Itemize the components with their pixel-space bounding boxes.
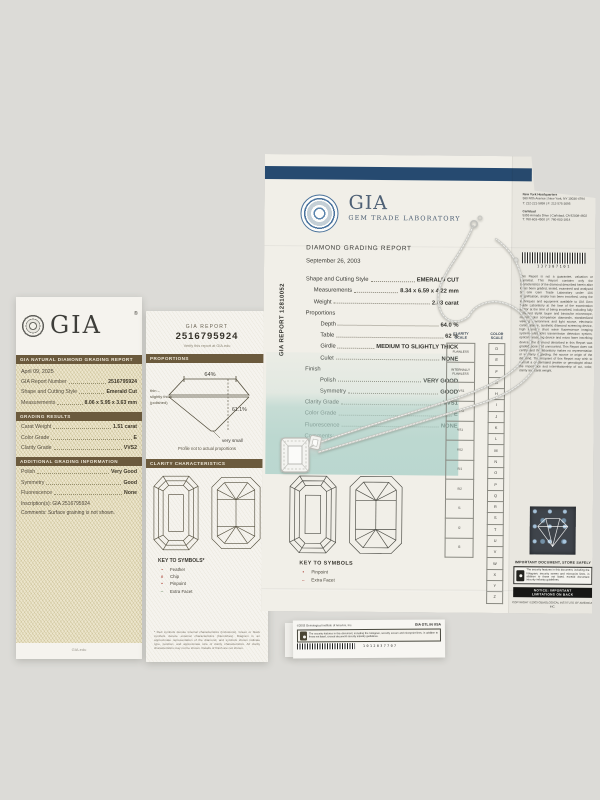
strip-key-title: KEY TO SYMBOLS* [158,558,268,564]
grading-results-fields: Carat Weight1.51 caratColor GradeEClarit… [21,424,137,451]
address-carlsbad: Carlsbad5355 Armada Drive | Carlsbad, CA… [522,209,592,223]
color-cell: G [488,378,505,389]
clarity-cell: INTERNALLY FLAWLESS [446,363,475,383]
color-scale-title: COLOR SCALE [488,332,505,341]
certificate-date: April 09, 2025 [21,369,137,375]
comments-value: NONE [304,439,457,452]
certificate-header-bar: GIA NATURAL DIAMOND GRADING REPORT [16,355,142,364]
key-item: –Extra Facet [299,576,353,584]
left-certificate: GIA ® GIA NATURAL DIAMOND GRADING REPORT… [16,297,142,659]
crown-view-diagram [153,474,199,552]
color-cell: V [486,547,503,558]
navy-top-bar [265,166,532,181]
table-percent-label: 64% [204,372,215,378]
color-cell: E [488,355,505,366]
certificate-footer: GIA.edu [16,643,142,659]
address-new-york: New York Headquarters580 Fifth Avenue | … [523,192,593,206]
photo-of-gia-reports: GIA ® GIA NATURAL DIAMOND GRADING REPORT… [0,0,600,800]
strip-report-label: GIA REPORT [146,324,268,330]
color-cell: S [487,513,504,524]
clarity-cell: VVS2 [446,402,475,422]
proportions-group-label: Proportions [306,305,459,318]
report-key-block: KEY TO SYMBOLS •Pinpoint–Extra Facet [299,560,353,584]
key-item: –Extra Facet [158,588,268,595]
color-cell: Z [486,592,503,603]
girdle-label-1: thin – [150,388,161,393]
key-item: ∧Chip [158,573,268,580]
certificate-logo-area: GIA ® [16,297,142,355]
field-row: FluorescenceNone [21,490,137,496]
report-legal-text: This Report is not a guarantee, valuatio… [519,274,593,373]
card-barcode-number: 1012037707 [363,644,397,648]
security-card: ©2003 Gemological Institute of America, … [293,619,445,658]
color-cell: T [487,525,504,536]
notice-bar: NOTICE: IMPORTANT LIMITATIONS ON BACK [513,587,592,598]
field-row: SymmetryGOOD [320,383,458,395]
address-line: T: 212-221-5858 | F: 212-575-3095 [523,201,593,206]
color-cell: I [488,400,505,411]
registered-mark: ® [134,311,138,317]
field-row: Carat Weight1.51 carat [21,424,137,430]
color-cell: J [488,412,505,423]
proportions-rows: Depth64.0 %Table62 %GirdleMEDIUM TO SLIG… [305,316,458,362]
clarity-cell: VVS1 [446,382,475,402]
report-barcode [522,252,586,264]
notice-line-2: LIMITATIONS ON BACK [513,593,592,598]
girdle-label-2: slightly thick [150,394,172,399]
card-code: GIA GTL IN USA [415,622,441,626]
additional-fields: PolishVery GoodSymmetryGoodFluorescenceN… [21,469,137,496]
key-item: ~Feather [158,566,268,573]
comments-line: Comments: Surface graining is not shown. [21,510,137,516]
card-security-text: The security features in this document, … [309,632,438,639]
report-key-title: KEY TO SYMBOLS [299,560,353,566]
culet-label: very small [222,438,243,443]
color-cell: F [488,366,505,377]
padlock-icon [516,570,524,581]
card-copyright: ©2003 Gemological Institute of America, … [297,623,352,627]
field-row: Color GradeE [305,406,458,419]
crown-view-diagram [288,472,337,556]
clarity-scale: CLARITY SCALE FLAWLESSINTERNALLY FLAWLES… [444,332,475,559]
padlock-icon [300,631,307,640]
clarity-cell: I1 [445,499,474,519]
hologram-sticker [530,506,576,554]
color-scale: COLOR SCALE DEFGHIJKLMNOPQRSTUVWXYZ [486,332,505,604]
certificate-fields: GIA Report Number2516795924Shape and Cut… [21,379,137,406]
report-barcode-number: 137307101 [522,264,586,269]
color-cell: H [488,389,505,400]
color-cell: P [487,479,504,490]
finish-rows: PolishVERY GOODSymmetryGOOD [305,372,458,396]
clarity-scale-title: CLARITY SCALE [446,332,475,341]
field-row: SymmetryGood [21,480,137,486]
strip-verify-text: Verify this report at GIA.edu [146,344,268,348]
certificate-body: GIA NATURAL DIAMOND GRADING REPORT April… [16,355,142,643]
laboratory-addresses: New York Headquarters580 Fifth Avenue | … [522,192,592,226]
color-cell: U [487,536,504,547]
gtl-emblem-icon [300,194,338,232]
color-cell: R [487,502,504,513]
inscription-line: Inscription(s): GIA 2516795924 [21,501,137,507]
girdle-label-3: (polished) [150,400,168,405]
depth-percent-label: 61.1% [232,407,247,413]
hologram-diamond-art [530,506,576,554]
color-cell: Q [487,491,504,502]
field-row: GIA Report Number2516795924 [21,379,137,385]
report-clarity-diagrams [288,472,403,557]
comments-label: Comments: [305,428,458,441]
clarity-cell: FLAWLESS [446,342,475,363]
clarity-scale-cells: FLAWLESSINTERNALLY FLAWLESSVVS1VVS2VS1VS… [444,342,475,558]
color-cell: M [487,445,504,456]
key-item: •Pinpoint [158,580,268,587]
strip-key-items: ~Feather∧Chip•Pinpoint–Extra Facet [158,566,268,596]
card-barcode [297,643,355,649]
field-row: Clarity GradeVVS2 [21,445,137,451]
color-cell: X [486,570,503,581]
clarity-cell: I2 [445,519,474,539]
gia-seal-icon [21,314,45,338]
profile-caption: Profile not to actual proportions [146,446,268,451]
color-cell: L [487,434,504,445]
color-cell: O [487,468,504,479]
security-statement-text: The security features in this document, … [526,569,589,583]
field-row: Shape and Cutting StyleEmerald Cut [21,389,137,395]
clarity-cell: I3 [444,538,473,558]
gia-wordmark: GIA [50,311,102,339]
important-document-label: IMPORTANT DOCUMENT, STORE SAFELY [513,560,592,565]
proportions-bar: PROPORTIONS [146,354,268,363]
clarity-cell: SI2 [445,480,474,500]
field-row: Measurements8.06 x 5.95 x 3.63 mm [21,400,137,406]
field-row: PolishVery Good [21,469,137,475]
report-copyright: COPYRIGHT ©2003 GEMOLOGICAL INSTITUTE OF… [511,600,594,609]
strip-report-number: 2516795924 [146,331,268,342]
clarity-cell: VS1 [446,421,475,441]
color-cell: K [488,423,505,434]
strip-footnote: * Red symbols denote internal characteri… [154,630,260,650]
gtl-gia-wordmark: GIA [348,194,460,214]
card-security-box: The security features in this document, … [297,628,441,642]
report-side-number: GIA REPORT 12810052 [279,246,286,356]
address-line: T: 760-603-4500 | F: 760-603-1814 [522,218,592,223]
field-row: Measurements8.34 x 6.59 x 4.22 mm [314,283,459,295]
grading-results-bar: GRADING RESULTS [16,412,142,421]
clarity-cell: VS2 [445,441,474,461]
report-strip: GIA REPORT 2516795924 Verify this report… [146,311,268,662]
grade-rows: Clarity GradeVVS1Color GradeEFluorescenc… [305,394,458,429]
shape-sub-rows: Measurements8.34 x 6.59 x 4.22 mmWeight2… [306,283,459,307]
profile-diagram: 64% 61.1% thin – slightly thick (polishe… [148,365,266,445]
color-cell: W [486,558,503,569]
clarity-characteristics-bar: CLARITY CHARACTERISTICS [146,459,268,468]
field-row: Color GradeE [21,435,137,441]
field-row: Shape and Cutting StyleEMERALD CUT [306,271,459,284]
additional-info-bar: ADDITIONAL GRADING INFORMATION [16,457,142,466]
clarity-diagrams [146,474,268,552]
report-date: September 26, 2003 [306,258,360,264]
gtl-subtitle: Gem Trade Laboratory [348,214,460,223]
gtl-brand: GIA Gem Trade Laboratory [348,194,460,223]
field-row: Clarity GradeVVS1 [305,394,458,407]
pavilion-view-diagram [348,473,403,557]
color-scale-cells: DEFGHIJKLMNOPQRSTUVWXYZ [486,343,505,604]
color-cell: N [487,457,504,468]
security-statement-box: The security features in this document, … [513,566,592,585]
color-cell: D [488,343,505,355]
report-fields: Shape and Cutting StyleEMERALD CUT Measu… [304,271,459,451]
report-key-items: •Pinpoint–Extra Facet [299,568,353,584]
pavilion-view-diagram [211,474,261,552]
field-row: FluorescenceNONE [305,417,458,430]
clarity-cell: SI1 [445,460,474,480]
gtl-report: GIA Gem Trade Laboratory DIAMOND GRADING… [261,154,596,614]
